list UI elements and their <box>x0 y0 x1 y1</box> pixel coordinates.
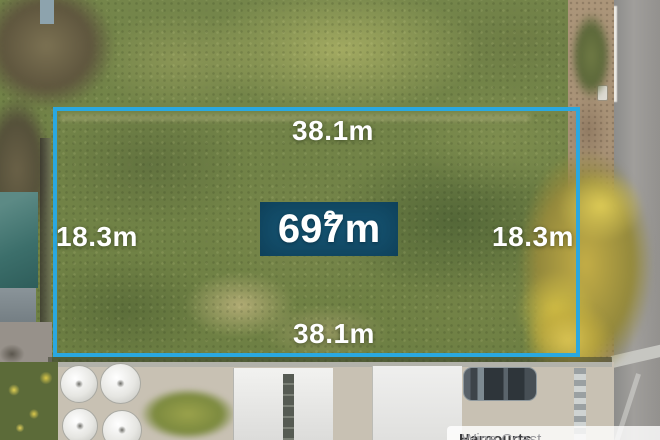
dimension-label-right: 18.3m <box>492 221 574 253</box>
dimension-label-top: 38.1m <box>292 115 374 147</box>
water-tank <box>100 363 141 404</box>
dimension-label-left: 18.3m <box>56 221 138 253</box>
water-tank <box>62 408 98 440</box>
brand-suffix: Wine Coast <box>462 431 542 440</box>
gravel-patch <box>0 322 52 366</box>
neighbor-roof-teal <box>0 192 38 288</box>
bush <box>140 388 236 440</box>
dimension-label-bottom: 38.1m <box>293 318 375 350</box>
aerial-lot-photo: 38.1m 38.1m 18.3m 18.3m 697m2 HarcourtsW… <box>0 0 660 440</box>
water-tank <box>60 365 98 403</box>
solar-panel-strip <box>283 374 294 440</box>
water-tank <box>102 410 142 440</box>
parked-car <box>463 367 537 401</box>
garden-bed <box>0 362 58 440</box>
area-badge: 697m2 <box>260 202 398 256</box>
agency-watermark: HarcourtsWine Coast <box>447 426 660 440</box>
structure-top-left <box>40 0 54 24</box>
roadside-shrub <box>571 12 611 100</box>
